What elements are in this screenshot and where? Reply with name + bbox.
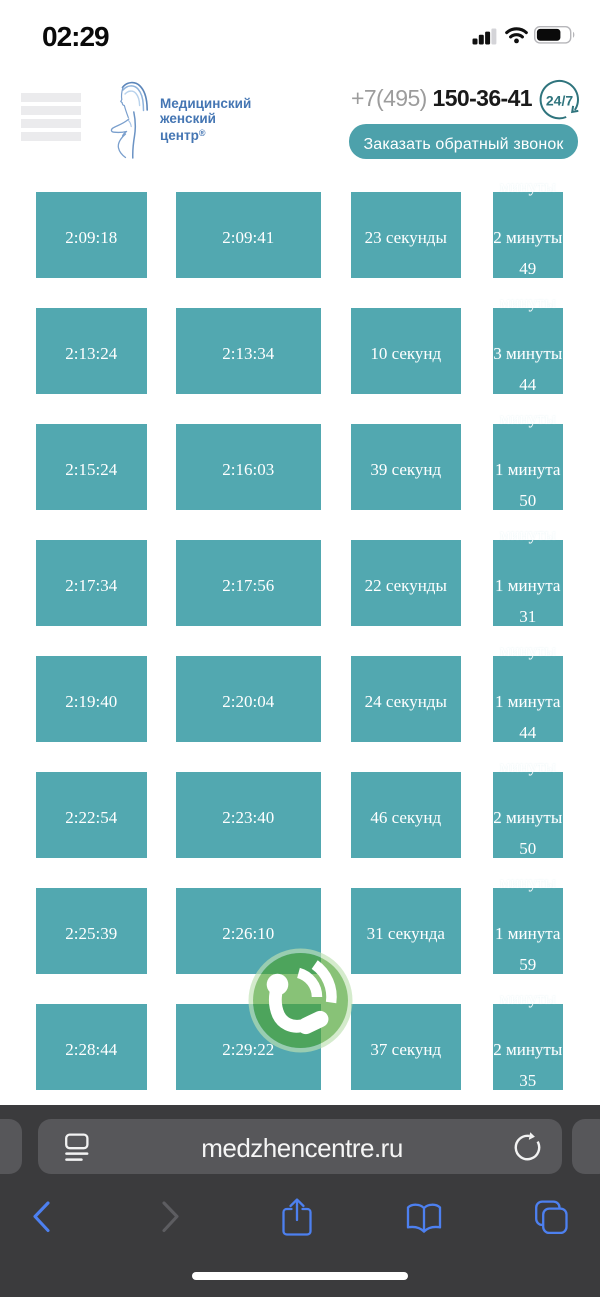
svg-text:24/7: 24/7: [546, 93, 573, 109]
